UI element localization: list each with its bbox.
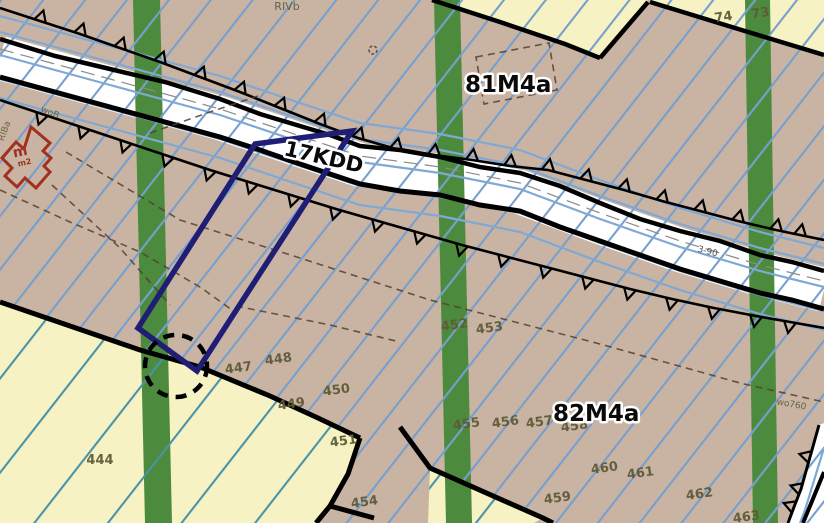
parcel-number: 73 bbox=[751, 5, 771, 22]
zone-label-82M4a: 82M4a bbox=[553, 401, 639, 427]
zoning-map-stage: 74 73 RIVb woB RIBa wo760 3-90 m m2 444 … bbox=[0, 0, 824, 523]
zoning-map[interactable]: 74 73 RIVb woB RIBa wo760 3-90 m m2 444 … bbox=[0, 0, 824, 523]
parcel-number: 74 bbox=[714, 9, 734, 26]
land-class-label: RIVb bbox=[274, 0, 299, 13]
zone-label-81M4a: 81M4a bbox=[465, 72, 551, 98]
parcel-number: 463 bbox=[732, 508, 761, 523]
parcel-number: 444 bbox=[86, 453, 113, 468]
